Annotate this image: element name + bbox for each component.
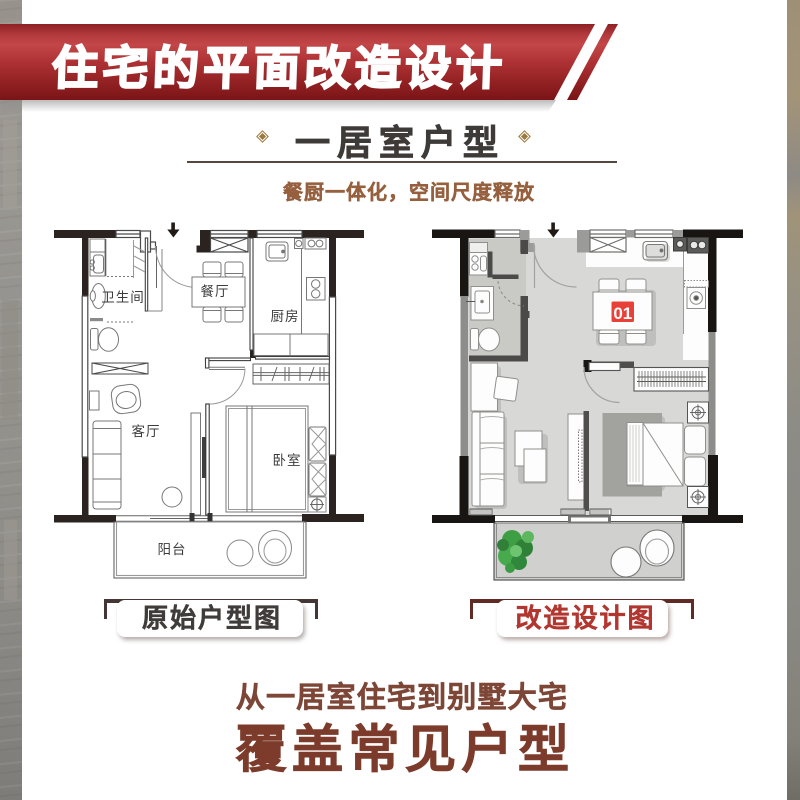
svg-text:客厅: 客厅 [132, 423, 161, 439]
svg-text:厨房: 厨房 [271, 309, 300, 324]
svg-text:餐厅: 餐厅 [201, 284, 230, 299]
svg-text:卫生间: 卫生间 [101, 290, 145, 305]
svg-text:卧室: 卧室 [273, 452, 302, 468]
svg-text:01: 01 [613, 304, 632, 323]
svg-text:阳台: 阳台 [158, 542, 187, 557]
